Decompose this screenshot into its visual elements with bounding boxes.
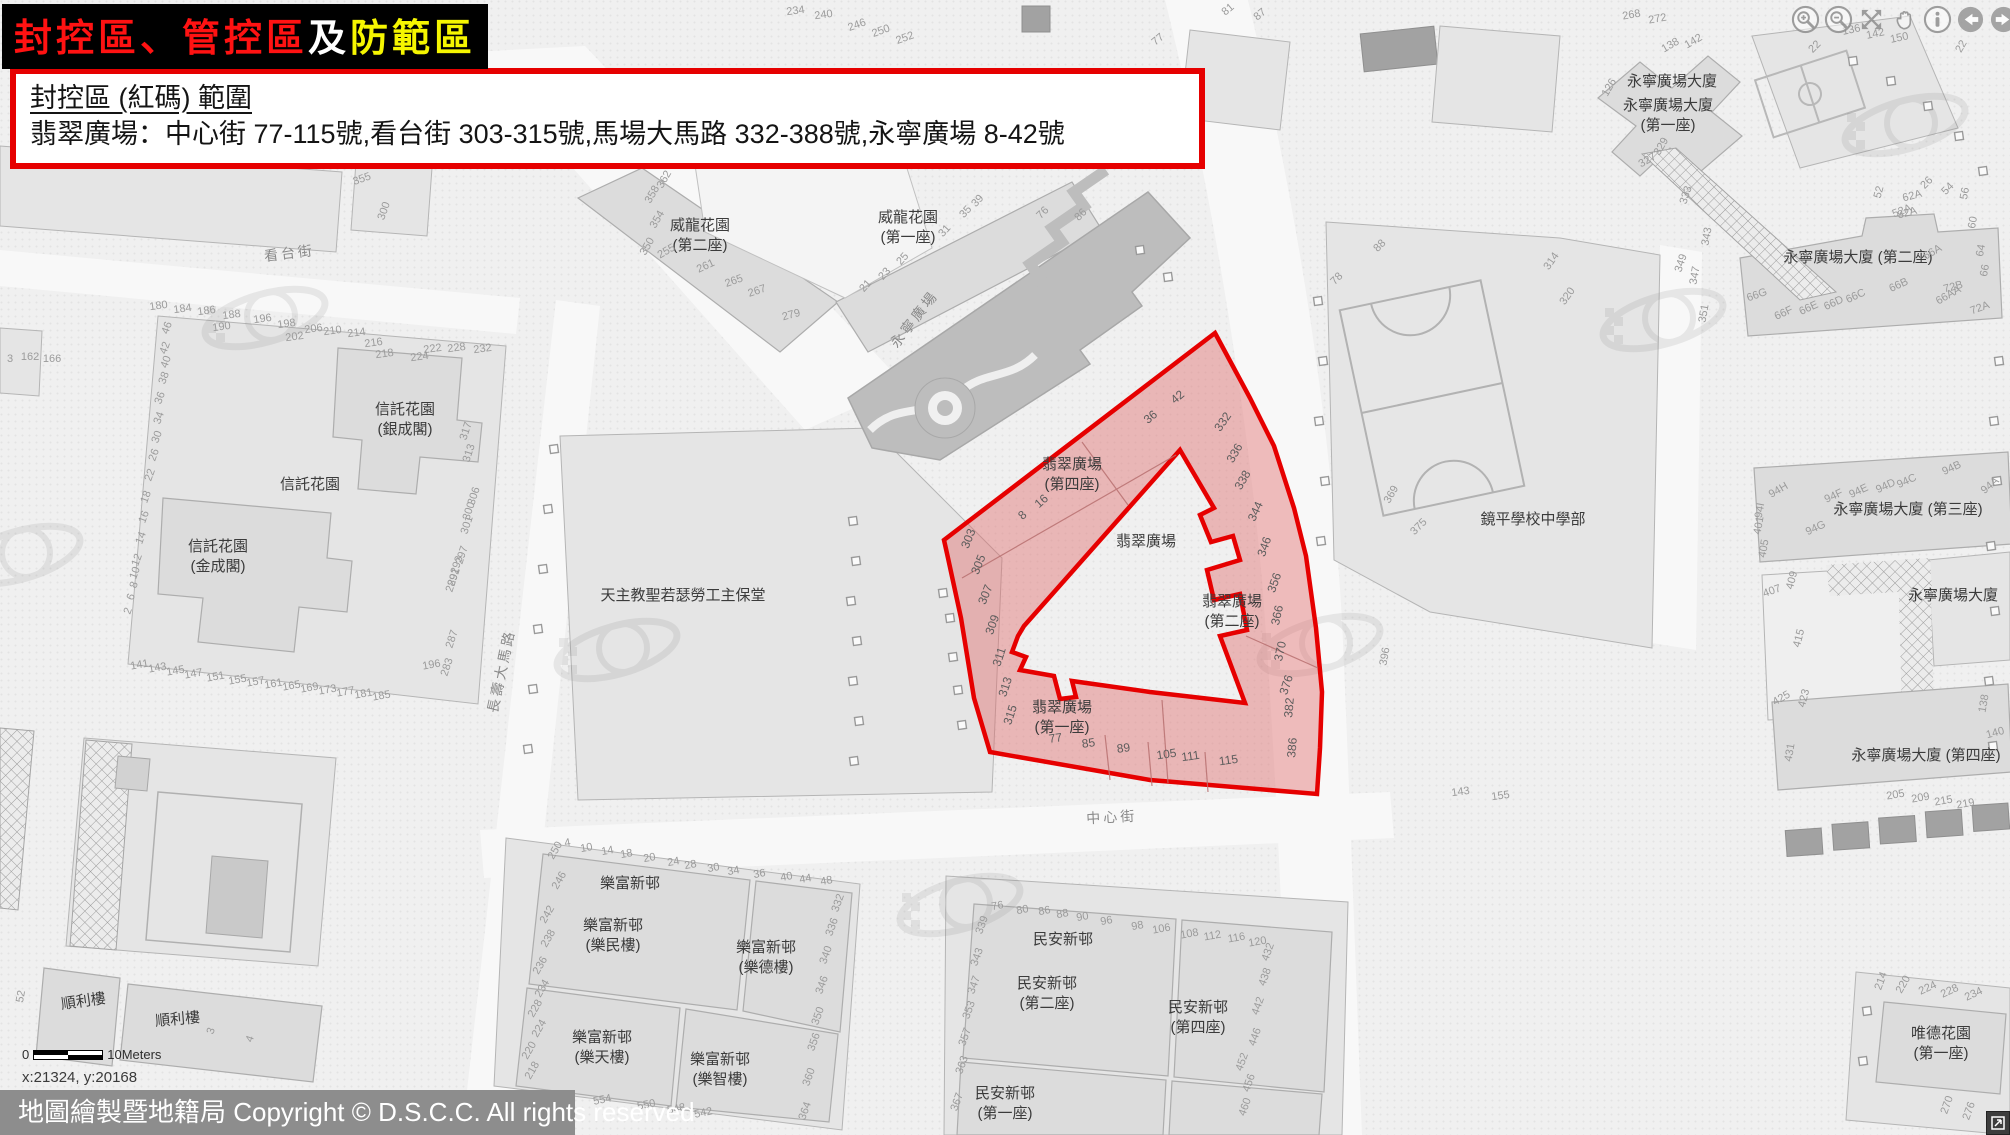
boundary-marker — [1923, 101, 1932, 110]
map-label: 115 — [1218, 752, 1239, 769]
map-label: 鏡平學校中學部 — [1480, 510, 1585, 528]
map-label: (第四座) — [1045, 475, 1100, 493]
map-label: 232 — [473, 342, 493, 356]
map-label: 88 — [1055, 907, 1069, 921]
banner-segment: 及 — [308, 18, 350, 60]
identify-info-icon — [1923, 5, 1952, 34]
map-label: (樂天樓) — [575, 1049, 630, 1066]
map-label: 222 — [423, 342, 443, 356]
map-label: 77 — [1048, 730, 1063, 746]
map-label: 240 — [814, 8, 834, 22]
cursor-coordinates: x:21324, y:20168 — [22, 1069, 137, 1086]
map-label: 34 — [726, 864, 740, 878]
boundary-marker — [848, 676, 857, 685]
map-label: 樂富新邨 — [583, 916, 643, 934]
map-label: 20 — [642, 851, 656, 865]
map-label: 234 — [786, 4, 806, 18]
boundary-marker — [533, 624, 542, 633]
map-label: 89 — [1116, 740, 1131, 756]
map-label: (第二座) — [1020, 994, 1075, 1012]
map-label: 24 — [666, 855, 680, 869]
map-label: 186 — [197, 304, 217, 318]
map-label: 3 — [7, 353, 13, 365]
lockdown-info-box: 封控區 (紅碼) 範圍 翡翠廣場：中心街 77-115號,看台街 303-315… — [10, 68, 1205, 169]
pan-button[interactable] — [1890, 5, 1919, 34]
map-label: 40 — [779, 870, 793, 884]
info-title: 封控區 (紅碼) 範圍 — [30, 80, 1185, 116]
map-label: 111 — [1180, 748, 1200, 764]
map-label: 18 — [619, 847, 633, 861]
boundary-marker — [846, 596, 855, 605]
scale-bar-graphic — [33, 1050, 103, 1060]
map-label: 民安新邨 — [1168, 999, 1228, 1016]
map-label: 44 — [798, 872, 812, 886]
boundary-marker — [1994, 356, 2003, 365]
boundary-marker — [851, 556, 860, 565]
map-label: 30 — [706, 861, 720, 875]
boundary-marker — [1313, 296, 1322, 305]
boundary-marker — [1314, 416, 1323, 425]
map-label: 76 — [990, 899, 1004, 913]
corner-widget-button[interactable] — [1986, 1111, 2010, 1135]
map-label: 威龍花園 — [878, 209, 938, 226]
map-label: 28 — [683, 858, 697, 872]
boundary-marker — [1886, 76, 1895, 85]
map-label: 永寧廣場大廈 — [1623, 96, 1713, 114]
forward-button[interactable] — [1989, 5, 2010, 34]
boundary-marker — [1318, 356, 1327, 365]
map-label: 60 — [1966, 215, 1980, 229]
map-label: 56 — [1958, 186, 1972, 200]
boundary-marker — [945, 613, 954, 622]
map-label: 166 — [43, 353, 61, 365]
map-label: 永寧廣場大廈 — [1908, 586, 1998, 604]
map-label: 36 — [752, 867, 766, 881]
map-label: 105 — [1156, 746, 1178, 763]
map-label: 48 — [819, 874, 833, 888]
map-label: (第一座) — [1035, 718, 1090, 736]
boundary-marker — [1989, 416, 1998, 425]
boundary-marker — [549, 444, 558, 453]
page-title: 封控區、管控區及防範區 — [2, 4, 488, 69]
map-label: 信託花園 — [280, 476, 340, 493]
map-label: 180 — [149, 299, 169, 313]
map-label: 10 — [579, 841, 593, 855]
map-label: 14 — [600, 844, 614, 858]
boundary-marker — [854, 716, 863, 725]
map-label: (第一座) — [978, 1104, 1033, 1122]
banner-segment: 封控區、管控區 — [14, 18, 308, 60]
map-label: (第一座) — [1641, 116, 1696, 134]
map-label: 85 — [1081, 735, 1096, 751]
boundary-marker — [948, 652, 957, 661]
boundary-marker — [1862, 1006, 1871, 1015]
pan-hand-icon — [1890, 5, 1919, 34]
copyright-bar: 地圖繪製暨地籍局 Copyright © D.S.C.C. All rights… — [0, 1090, 575, 1135]
scale-bar: 0 10Meters — [22, 1047, 161, 1062]
boundary-marker — [957, 720, 966, 729]
map-label: 中心街 — [1086, 808, 1138, 827]
boundary-marker — [953, 685, 962, 694]
boundary-marker — [1316, 536, 1325, 545]
map-label: 80 — [1015, 903, 1029, 917]
scale-label: 10Meters — [107, 1047, 161, 1062]
map-label: 威龍花園 — [670, 217, 730, 234]
map-label: 翡翠廣場 — [1202, 593, 1262, 610]
map-label: 信託花園 — [188, 538, 248, 555]
zoom-out-button[interactable] — [1824, 5, 1853, 34]
map-label: 永寧廣場大廈 — [1627, 72, 1717, 90]
back-button[interactable] — [1956, 5, 1985, 34]
boundary-marker — [1984, 676, 1993, 685]
map-label: 98 — [1130, 919, 1144, 933]
boundary-marker — [1978, 166, 1987, 175]
map-label: 民安新邨 — [1033, 931, 1093, 948]
map-label: (樂民樓) — [586, 937, 641, 954]
map-canvas[interactable]: 威龍花園(第二座)威龍花園(第一座)信託花園(銀成閣)信託花園信託花園(金成閣)… — [0, 0, 2010, 1135]
map-label: 184 — [173, 302, 193, 316]
map-toolbar — [1791, 5, 2010, 34]
boundary-marker — [1848, 56, 1857, 65]
map-label: 翡翠廣場 — [1032, 699, 1092, 716]
map-label: 86 — [1037, 904, 1051, 918]
map-label: 190 — [212, 320, 232, 334]
zoom-out-icon — [1824, 5, 1853, 34]
map-label: 唯德花園 — [1911, 1024, 1971, 1042]
map-label: 143 — [1451, 785, 1471, 799]
boundary-marker — [543, 504, 552, 513]
boundary-marker — [538, 564, 547, 573]
boundary-marker — [528, 684, 537, 693]
map-label: (金成閣) — [191, 558, 246, 575]
map-label: 90 — [1075, 910, 1089, 924]
scale-zero: 0 — [22, 1047, 29, 1062]
map-label: 信託花園 — [375, 401, 435, 418]
map-label: 162 — [21, 351, 39, 363]
boundary-marker — [852, 636, 861, 645]
zoom-in-icon — [1791, 5, 1820, 34]
map-label: (銀成閣) — [378, 421, 433, 438]
map-label: 206 — [304, 322, 324, 336]
boundary-marker — [1990, 606, 1999, 615]
map-label: 96 — [1099, 914, 1113, 928]
identify-button[interactable] — [1923, 5, 1952, 34]
map-label: 永寧廣場大廈 (第三座) — [1833, 500, 1982, 518]
map-label: (樂德樓) — [739, 958, 794, 976]
back-arrow-icon — [1956, 5, 1985, 34]
boundary-marker — [523, 744, 532, 753]
map-label: 翡翠廣場 — [1116, 533, 1176, 550]
map-label: 228 — [447, 341, 467, 355]
map-label: (第一座) — [1914, 1044, 1969, 1062]
map-label: 196 — [253, 312, 273, 326]
map-label: 386 — [1284, 737, 1300, 758]
map-label: 198 — [277, 317, 297, 331]
map-label: 66 — [1978, 263, 1992, 277]
map-label: 52 — [14, 989, 28, 1003]
boundary-marker — [1954, 131, 1963, 140]
map-application: { "banner": { "segments": [ {"text": "封控… — [0, 0, 2010, 1135]
boundary-marker — [849, 756, 858, 765]
map-label: 64 — [1974, 243, 1988, 257]
map-label: 樂富新邨 — [690, 1050, 750, 1068]
map-label: 202 — [285, 330, 305, 344]
map-label: (第二座) — [1205, 612, 1260, 630]
resize-map-icon — [1990, 1115, 2006, 1131]
zoom-in-button[interactable] — [1791, 5, 1820, 34]
map-label: (樂智樓) — [693, 1070, 748, 1088]
map-label: (第一座) — [881, 228, 936, 246]
full-extent-icon — [1857, 5, 1886, 34]
boundary-marker — [1986, 541, 1995, 550]
info-body: 翡翠廣場：中心街 77-115號,看台街 303-315號,馬場大馬路 332-… — [30, 116, 1185, 152]
boundary-marker — [1858, 1056, 1867, 1065]
boundary-marker — [1163, 272, 1172, 281]
boundary-marker — [938, 588, 947, 597]
map-label: 民安新邨 — [975, 1085, 1035, 1102]
map-label: 樂富新邨 — [736, 938, 796, 956]
map-label: 民安新邨 — [1017, 975, 1077, 992]
banner-segment: 防範區 — [350, 18, 476, 60]
map-label: 翡翠廣場 — [1042, 456, 1102, 473]
map-label: 樂富新邨 — [572, 1028, 632, 1046]
boundary-marker — [1135, 245, 1144, 254]
map-label: 155 — [1491, 789, 1511, 803]
map-label: 天主教聖若瑟勞工主保堂 — [600, 587, 765, 604]
full-extent-button[interactable] — [1857, 5, 1886, 34]
map-label: (第四座) — [1171, 1018, 1226, 1036]
boundary-marker — [1320, 476, 1329, 485]
forward-arrow-icon — [1989, 5, 2010, 34]
map-label: 樂富新邨 — [600, 874, 660, 892]
map-label: 218 — [375, 347, 395, 361]
map-label: 210 — [323, 324, 343, 338]
map-label: 382 — [1281, 697, 1297, 718]
boundary-marker — [848, 516, 857, 525]
map-label: 永寧廣場大廈 (第四座) — [1851, 746, 2000, 764]
map-label: 永寧廣場大廈 (第二座) — [1783, 248, 1932, 266]
map-label: (第二座) — [673, 236, 728, 254]
